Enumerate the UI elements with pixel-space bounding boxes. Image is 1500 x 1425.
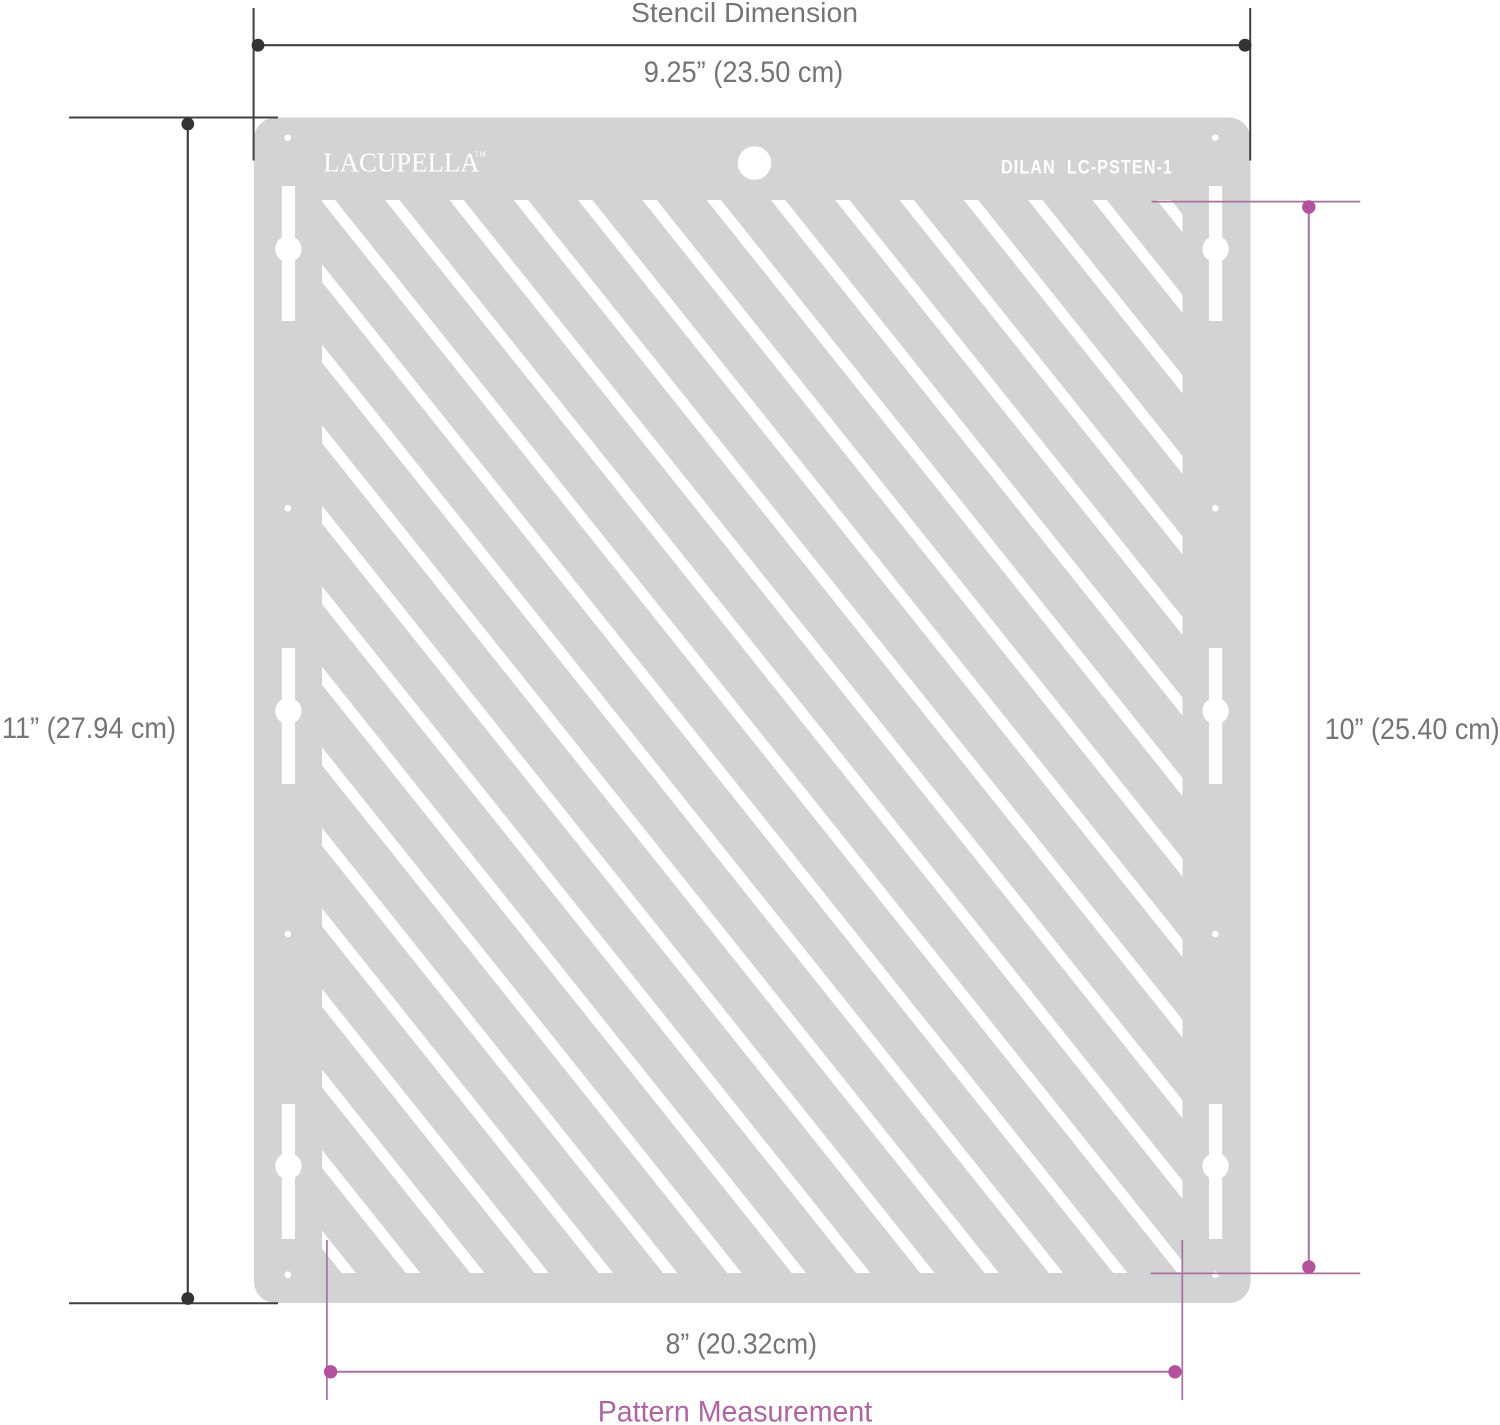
svg-text:LACUPELLA: LACUPELLA bbox=[323, 147, 480, 178]
svg-text:8” (20.32cm): 8” (20.32cm) bbox=[666, 1329, 818, 1361]
svg-text:9.25” (23.50 cm): 9.25” (23.50 cm) bbox=[644, 56, 844, 89]
svg-text:Stencil Dimension: Stencil Dimension bbox=[631, 0, 858, 28]
svg-text:DILAN LC-PSTEN-1: DILAN LC-PSTEN-1 bbox=[1001, 158, 1173, 179]
svg-text:11” (27.94 cm): 11” (27.94 cm) bbox=[2, 712, 176, 745]
svg-text:TM: TM bbox=[475, 150, 487, 159]
svg-text:10” (25.40 cm): 10” (25.40 cm) bbox=[1325, 713, 1500, 746]
svg-text:Pattern Measurement: Pattern Measurement bbox=[598, 1396, 873, 1425]
